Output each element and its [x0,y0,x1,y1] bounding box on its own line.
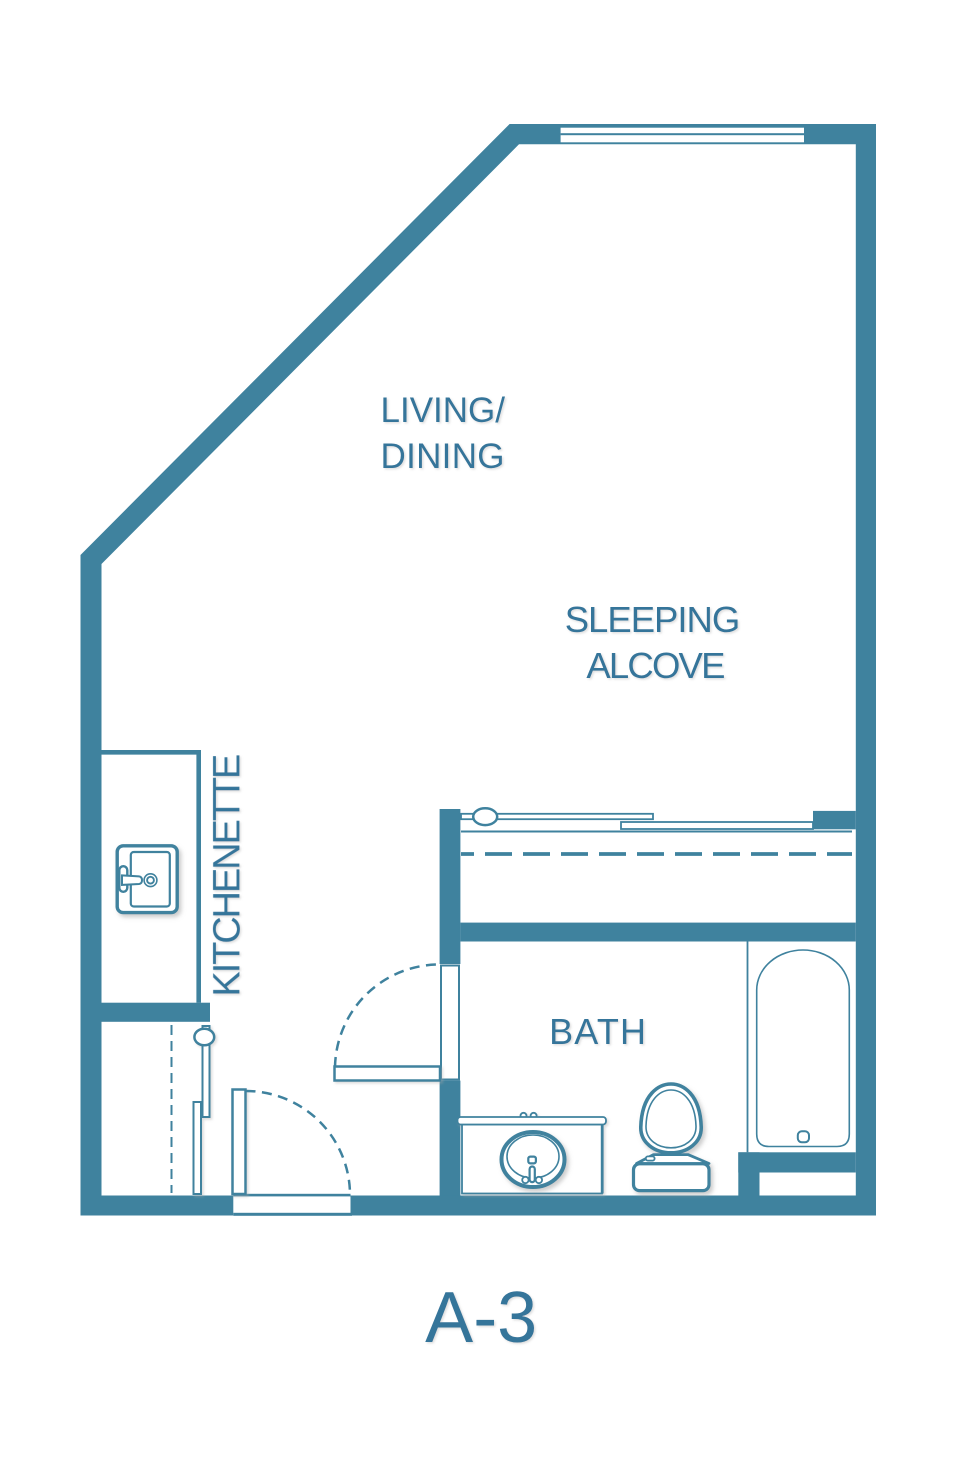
svg-text:KITCHENETTE: KITCHENETTE [206,755,248,997]
svg-text:BATH: BATH [549,1011,647,1052]
svg-text:SLEEPING: SLEEPING [565,599,740,640]
svg-text:DINING: DINING [381,437,505,476]
svg-text:LIVING/: LIVING/ [381,391,506,430]
svg-text:ALCOVE: ALCOVE [586,645,724,686]
svg-text:A-3: A-3 [425,1278,537,1358]
